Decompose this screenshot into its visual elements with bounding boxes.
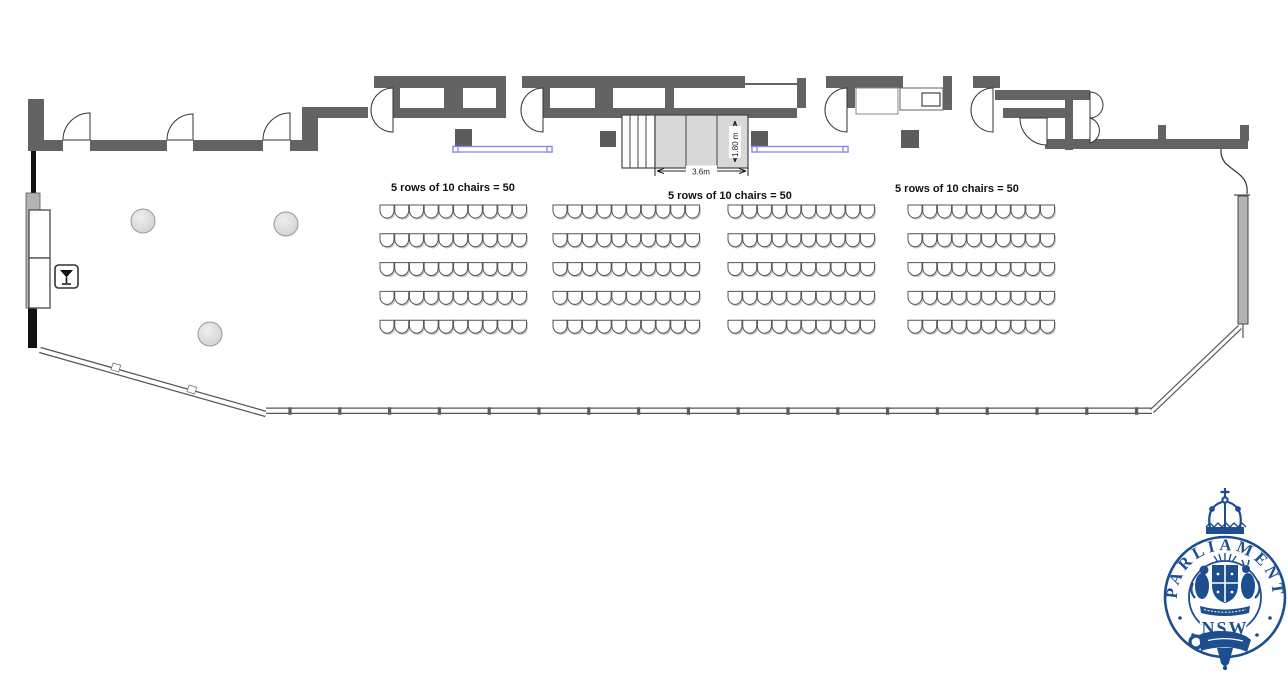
chair xyxy=(772,205,786,218)
chair xyxy=(656,263,670,276)
seating-label: 5 rows of 10 chairs = 50 xyxy=(391,182,515,194)
chair xyxy=(424,205,438,218)
chair xyxy=(454,263,468,276)
wall-segment xyxy=(28,308,37,348)
chair xyxy=(685,234,699,247)
chair xyxy=(846,234,860,247)
chair xyxy=(409,234,423,247)
mullion-tick xyxy=(1135,407,1138,415)
chair xyxy=(743,263,757,276)
chair xyxy=(627,205,641,218)
chair xyxy=(743,205,757,218)
chair xyxy=(498,205,512,218)
chair xyxy=(952,320,966,333)
chair xyxy=(627,291,641,304)
mullion-tick xyxy=(1085,407,1088,415)
chair xyxy=(483,205,497,218)
chair xyxy=(816,205,830,218)
chair xyxy=(1011,291,1025,304)
chair xyxy=(627,320,641,333)
chair xyxy=(468,291,482,304)
chair xyxy=(498,234,512,247)
chair xyxy=(831,291,845,304)
chair xyxy=(772,263,786,276)
chair xyxy=(612,205,626,218)
chair xyxy=(380,291,394,304)
chair xyxy=(802,320,816,333)
chair xyxy=(860,205,874,218)
seating-labels: 5 rows of 10 chairs = 50 5 rows of 10 ch… xyxy=(391,182,1019,202)
chair xyxy=(1040,205,1054,218)
chair xyxy=(787,234,801,247)
chair xyxy=(1040,291,1054,304)
chair xyxy=(424,263,438,276)
chair xyxy=(671,234,685,247)
double-door-arc xyxy=(1090,92,1103,118)
chair xyxy=(656,234,670,247)
mullion-tick xyxy=(936,407,939,415)
chair-blocks xyxy=(380,205,1056,335)
door-arc xyxy=(1020,118,1047,145)
chair xyxy=(468,234,482,247)
wall-segment xyxy=(1003,108,1065,118)
chair xyxy=(1040,234,1054,247)
chair xyxy=(380,205,394,218)
chair xyxy=(685,205,699,218)
wall-segment xyxy=(315,107,368,118)
cocktail-table-round xyxy=(198,322,222,346)
chair xyxy=(1026,234,1040,247)
chair xyxy=(483,291,497,304)
chair xyxy=(787,320,801,333)
bar-counter xyxy=(29,258,50,308)
chair xyxy=(553,263,567,276)
chair xyxy=(1040,263,1054,276)
chair xyxy=(757,205,771,218)
chair xyxy=(860,291,874,304)
chair xyxy=(439,205,453,218)
chair xyxy=(582,291,596,304)
chair xyxy=(982,205,996,218)
chair xyxy=(641,234,655,247)
chair xyxy=(757,263,771,276)
chair xyxy=(772,234,786,247)
store-room xyxy=(856,88,898,114)
chair xyxy=(923,205,937,218)
chair xyxy=(409,291,423,304)
wall-segment xyxy=(90,140,167,151)
chair xyxy=(802,234,816,247)
wall-segment xyxy=(374,76,506,88)
speaker-square xyxy=(600,131,616,147)
stage-depth-label: 1.80 m xyxy=(731,132,740,157)
chair xyxy=(923,234,937,247)
chair xyxy=(923,320,937,333)
wall-segment xyxy=(193,140,263,151)
chair xyxy=(996,205,1010,218)
wall-segment xyxy=(522,76,745,88)
chair xyxy=(908,320,922,333)
chair xyxy=(627,234,641,247)
chair xyxy=(743,320,757,333)
cocktail-table-round xyxy=(274,212,298,236)
mullion-tick xyxy=(637,407,640,415)
mullion-tick xyxy=(488,407,491,415)
wall-segment xyxy=(797,78,806,108)
chair xyxy=(802,291,816,304)
chair xyxy=(409,263,423,276)
wall-segment xyxy=(665,88,674,108)
bar-area xyxy=(29,209,298,346)
mullion-tick xyxy=(288,407,291,415)
chair xyxy=(685,320,699,333)
chair xyxy=(982,291,996,304)
chair xyxy=(923,263,937,276)
chair xyxy=(512,263,526,276)
chair xyxy=(439,320,453,333)
chair xyxy=(787,263,801,276)
chair xyxy=(728,205,742,218)
chair xyxy=(967,263,981,276)
chair xyxy=(1026,263,1040,276)
door-arc xyxy=(371,88,393,132)
chair xyxy=(627,263,641,276)
chair xyxy=(757,320,771,333)
chair xyxy=(568,234,582,247)
chair xyxy=(743,291,757,304)
wall-segment xyxy=(995,90,1090,100)
chair xyxy=(757,291,771,304)
chair xyxy=(967,320,981,333)
cocktail-table-round xyxy=(131,209,155,233)
chair xyxy=(728,320,742,333)
wall-segment xyxy=(543,88,550,108)
chair xyxy=(816,320,830,333)
mullion-tick xyxy=(836,407,839,415)
wall-segment xyxy=(1045,139,1248,149)
chair xyxy=(512,205,526,218)
chair xyxy=(846,320,860,333)
chair xyxy=(468,263,482,276)
wall-segment-glass xyxy=(1238,196,1248,324)
chair xyxy=(553,234,567,247)
chair xyxy=(923,291,937,304)
speaker-square xyxy=(751,131,768,147)
chair xyxy=(908,205,922,218)
speaker-square xyxy=(455,129,472,146)
chair xyxy=(512,320,526,333)
chair xyxy=(846,205,860,218)
chair xyxy=(380,320,394,333)
chair xyxy=(1011,263,1025,276)
chair xyxy=(439,263,453,276)
chair xyxy=(468,205,482,218)
chair xyxy=(772,320,786,333)
martini-icon xyxy=(55,265,78,288)
chair xyxy=(952,234,966,247)
trestle-table-blue xyxy=(453,147,552,153)
chair xyxy=(831,320,845,333)
chair xyxy=(787,291,801,304)
chair xyxy=(498,291,512,304)
wall-segment xyxy=(393,88,400,108)
chair xyxy=(380,263,394,276)
chair xyxy=(967,205,981,218)
wall-segment xyxy=(496,88,506,118)
parliament-nsw-logo: PARLIAMENT xyxy=(1162,488,1288,670)
chair xyxy=(967,291,981,304)
chair xyxy=(597,234,611,247)
wall-segment xyxy=(826,76,903,88)
chair xyxy=(553,291,567,304)
chair xyxy=(656,320,670,333)
chair xyxy=(597,320,611,333)
chair xyxy=(1026,205,1040,218)
chair xyxy=(656,291,670,304)
chair xyxy=(937,320,951,333)
chair xyxy=(612,234,626,247)
mullion-tick xyxy=(986,407,989,415)
chair xyxy=(582,205,596,218)
curved-wall xyxy=(1221,149,1247,194)
chair xyxy=(612,291,626,304)
chair xyxy=(908,291,922,304)
chair xyxy=(395,205,409,218)
chair xyxy=(937,205,951,218)
chair xyxy=(483,234,497,247)
chair xyxy=(553,320,567,333)
chair xyxy=(952,263,966,276)
chair xyxy=(454,291,468,304)
chair xyxy=(454,205,468,218)
chair xyxy=(612,320,626,333)
chair xyxy=(967,234,981,247)
door-arc xyxy=(263,113,290,140)
chair xyxy=(641,320,655,333)
mullion-tick xyxy=(1035,407,1038,415)
speaker-square xyxy=(901,130,919,148)
chair xyxy=(568,205,582,218)
chair xyxy=(937,291,951,304)
chair xyxy=(996,320,1010,333)
chair xyxy=(1026,320,1040,333)
chair xyxy=(937,263,951,276)
chair xyxy=(454,234,468,247)
chair xyxy=(802,205,816,218)
chair xyxy=(409,205,423,218)
wall-segment xyxy=(847,88,855,108)
chair xyxy=(816,234,830,247)
chair xyxy=(846,291,860,304)
chair xyxy=(831,263,845,276)
wall-segment xyxy=(943,76,952,110)
chair xyxy=(816,291,830,304)
chair xyxy=(816,263,830,276)
chair xyxy=(1040,320,1054,333)
chair xyxy=(424,291,438,304)
chair xyxy=(597,291,611,304)
chair xyxy=(568,320,582,333)
chair xyxy=(409,320,423,333)
chair xyxy=(846,263,860,276)
chair xyxy=(498,263,512,276)
stage: 3.6m 1.80 m xyxy=(622,115,748,177)
mullion-tick xyxy=(786,407,789,415)
chair xyxy=(860,234,874,247)
mullion-tick xyxy=(537,407,540,415)
wall-segment xyxy=(973,76,1000,88)
chair xyxy=(483,263,497,276)
wall-segment xyxy=(31,146,36,193)
chair xyxy=(982,234,996,247)
mullion-tick xyxy=(737,407,740,415)
crown-icon xyxy=(1206,488,1246,534)
wall-segment xyxy=(1158,125,1166,141)
chair xyxy=(512,234,526,247)
chair xyxy=(395,291,409,304)
chair xyxy=(937,234,951,247)
chair xyxy=(454,320,468,333)
chair xyxy=(772,291,786,304)
chair xyxy=(395,234,409,247)
chair xyxy=(685,291,699,304)
chair xyxy=(831,205,845,218)
trestle-table-blue xyxy=(752,147,848,153)
chair xyxy=(568,263,582,276)
chair xyxy=(671,320,685,333)
chair xyxy=(439,291,453,304)
door-arc xyxy=(971,88,993,132)
chair xyxy=(597,205,611,218)
mullion-tick xyxy=(687,407,690,415)
chair xyxy=(424,234,438,247)
chair xyxy=(483,320,497,333)
wall-segment xyxy=(28,99,44,143)
chair xyxy=(1011,320,1025,333)
wall-segment xyxy=(28,140,63,151)
chair xyxy=(553,205,567,218)
chair xyxy=(1026,291,1040,304)
mullion-tick xyxy=(338,407,341,415)
chair xyxy=(641,205,655,218)
chair xyxy=(498,320,512,333)
chair xyxy=(908,263,922,276)
chair xyxy=(860,263,874,276)
door-arc xyxy=(521,88,543,132)
chair xyxy=(395,320,409,333)
door-arc xyxy=(825,88,847,132)
chair xyxy=(568,291,582,304)
sink xyxy=(922,93,940,106)
chair xyxy=(743,234,757,247)
chair xyxy=(996,234,1010,247)
chair xyxy=(671,291,685,304)
stage-width-label: 3.6m xyxy=(692,168,710,177)
wall-segment xyxy=(1240,125,1249,141)
chair xyxy=(787,205,801,218)
door-arc xyxy=(167,114,193,140)
chair xyxy=(468,320,482,333)
chair xyxy=(512,291,526,304)
chair xyxy=(1011,205,1025,218)
chair xyxy=(671,205,685,218)
chair xyxy=(380,234,394,247)
mullion-tick xyxy=(587,407,590,415)
chair xyxy=(641,291,655,304)
chair xyxy=(802,263,816,276)
seating-label: 5 rows of 10 chairs = 50 xyxy=(895,183,1019,195)
mullion-tick xyxy=(886,407,889,415)
seating-label: 5 rows of 10 chairs = 50 xyxy=(668,190,792,202)
chair xyxy=(728,234,742,247)
bar-counter xyxy=(29,210,50,258)
chair xyxy=(641,263,655,276)
chair xyxy=(671,263,685,276)
chair xyxy=(908,234,922,247)
chair xyxy=(996,291,1010,304)
chair xyxy=(860,320,874,333)
chair xyxy=(597,263,611,276)
chair xyxy=(1011,234,1025,247)
chair xyxy=(728,291,742,304)
floor-plan: 3.6m 1.80 m xyxy=(0,0,1288,677)
chair xyxy=(612,263,626,276)
chair xyxy=(952,205,966,218)
chair xyxy=(582,263,596,276)
chair xyxy=(982,263,996,276)
chair xyxy=(582,234,596,247)
door-arc xyxy=(63,113,90,140)
chair xyxy=(831,234,845,247)
chair xyxy=(996,263,1010,276)
chair xyxy=(728,263,742,276)
wall-segment xyxy=(444,76,463,118)
chair xyxy=(656,205,670,218)
chair xyxy=(952,291,966,304)
chair xyxy=(424,320,438,333)
mullion-tick xyxy=(388,407,391,415)
chair xyxy=(982,320,996,333)
mullion-tick xyxy=(438,407,441,415)
chair xyxy=(395,263,409,276)
wall-segment xyxy=(595,76,613,118)
chair xyxy=(582,320,596,333)
chair xyxy=(685,263,699,276)
chair xyxy=(439,234,453,247)
chair xyxy=(757,234,771,247)
